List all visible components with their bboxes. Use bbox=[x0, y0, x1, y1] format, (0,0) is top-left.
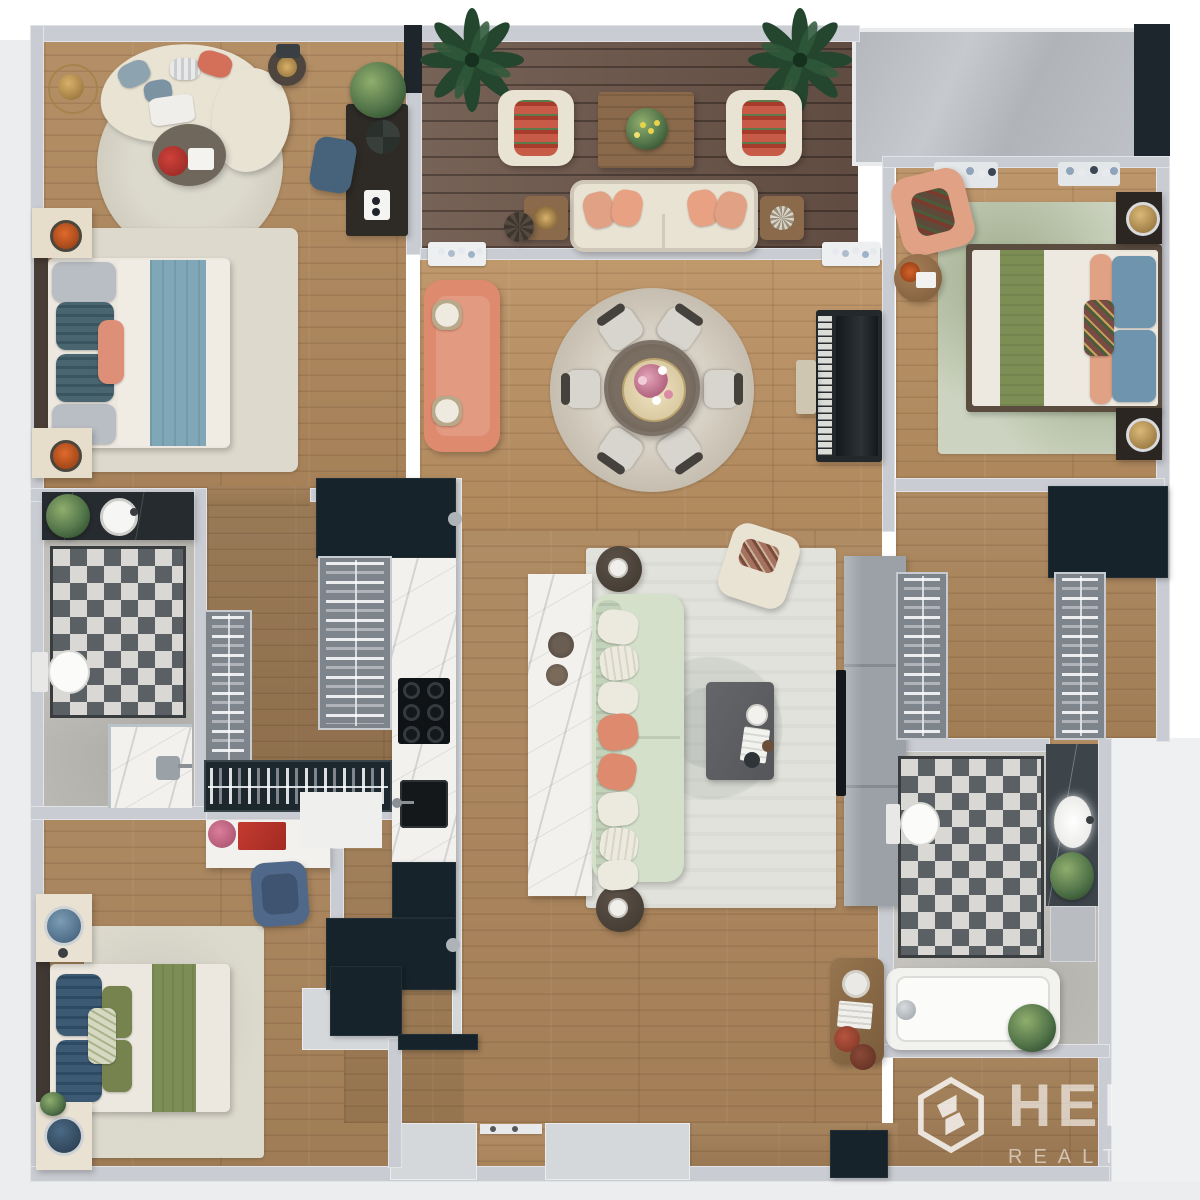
bathroom2-vanity-plant bbox=[1050, 852, 1094, 900]
kitchen-cabinet-top-knob bbox=[448, 512, 462, 526]
hall-dark-cabinet bbox=[830, 1130, 888, 1178]
glass-dark-frame bbox=[1134, 24, 1170, 166]
bathroom1-plant bbox=[46, 494, 90, 538]
wall-bottom-entry-right bbox=[545, 1123, 690, 1180]
dining-planter-right-flowers bbox=[832, 248, 839, 255]
dining-chair-left bbox=[566, 370, 600, 408]
piano-keys bbox=[818, 316, 832, 456]
master-bed-blue-throw bbox=[150, 260, 206, 446]
glass-skylight bbox=[852, 28, 1138, 166]
kitchen-end-strip bbox=[398, 1034, 478, 1050]
master-bed-pillow-grey-1 bbox=[52, 262, 116, 302]
closet-hangers bbox=[326, 562, 384, 724]
closet-hangers bbox=[1062, 578, 1098, 734]
dining-planter-left-flowers bbox=[438, 248, 445, 255]
dining-sofa-pillow-1 bbox=[432, 300, 462, 330]
wall-right-lower bbox=[1098, 738, 1112, 1182]
living-coffee-table-decor-1 bbox=[744, 752, 760, 768]
master-coffee-table-flowers bbox=[158, 146, 188, 176]
hall-bottom-right-floor bbox=[893, 1058, 1098, 1168]
bedroom2-side-table-card bbox=[916, 272, 936, 288]
master-sofa-pillow-stripe bbox=[170, 58, 200, 80]
bedroom3-desk-pink-flowers bbox=[208, 820, 236, 848]
kitchen-cabinet-mid bbox=[392, 862, 456, 918]
bedroom3-nightstand-plant bbox=[40, 1092, 66, 1116]
master-desk-parasol-decor bbox=[366, 120, 400, 154]
bathtub-plant bbox=[1008, 1004, 1056, 1052]
closet2-cabinet bbox=[1048, 486, 1168, 578]
balcony-armchair-right-cushion bbox=[742, 100, 786, 156]
balcony-table-plant bbox=[626, 108, 668, 150]
master-desk-tray-dot1 bbox=[372, 197, 380, 205]
hall-console-book bbox=[837, 1001, 873, 1030]
master-bed-pillow-salmon bbox=[98, 320, 124, 384]
bathroom2-toilet-bowl bbox=[900, 802, 940, 846]
balcony-stool bbox=[504, 212, 534, 242]
wall-bedroom2-top bbox=[882, 156, 1170, 168]
balcony-armchair-left-cushion bbox=[514, 100, 558, 156]
bedroom3-bed-green-runner bbox=[152, 964, 196, 1112]
bedroom3-lamp-top bbox=[44, 906, 84, 946]
master-candle-top bbox=[50, 220, 82, 252]
bedroom2-lamp-top bbox=[1126, 202, 1160, 236]
hall-console-tray bbox=[842, 970, 870, 998]
outside-left bbox=[0, 40, 30, 1200]
master-side-table-tray bbox=[277, 57, 297, 77]
bedroom2-pillow-blue-1 bbox=[1112, 256, 1156, 328]
hall-console-flowers-2 bbox=[850, 1044, 876, 1070]
living-sofa-pillow-white-3 bbox=[596, 680, 639, 716]
cooktop-burner-1 bbox=[403, 682, 420, 699]
master-wall-decor bbox=[276, 44, 300, 58]
master-bed-headboard bbox=[34, 254, 48, 450]
tv-screen bbox=[836, 670, 846, 796]
bedroom2-lamp-bottom bbox=[1126, 418, 1160, 452]
master-candle-bottom bbox=[50, 440, 82, 472]
bedroom3-pillow-floral bbox=[88, 1008, 116, 1064]
wall-bottom-entry-left bbox=[390, 1123, 477, 1180]
living-coffee-table-cup bbox=[746, 704, 768, 726]
bedroom3-desk-red-art bbox=[238, 822, 286, 850]
bedroom3-office-chair-seat bbox=[261, 873, 300, 915]
cooktop-burner-5 bbox=[403, 726, 420, 743]
bathroom2-cabinet bbox=[1050, 906, 1096, 962]
master-desk-tray-dot2 bbox=[372, 208, 380, 216]
bathroom1-toilet-bowl bbox=[48, 650, 90, 694]
bedroom3-lamp-bottom bbox=[44, 1116, 84, 1156]
bedroom3-nightstand-top-dot bbox=[58, 948, 68, 958]
kitchen-cabinet-top bbox=[316, 478, 456, 558]
dining-table-flowers bbox=[634, 364, 668, 398]
living-console-plate-2 bbox=[546, 664, 568, 686]
closet1-rack-left bbox=[204, 610, 252, 764]
outside-right bbox=[1110, 738, 1200, 1182]
cooktop-burner-2 bbox=[427, 682, 444, 699]
cooktop-burner-3 bbox=[403, 704, 420, 721]
bathroom2-checker-floor bbox=[898, 756, 1044, 958]
bedroom2-pillow-floral bbox=[1084, 300, 1114, 356]
piano-bench bbox=[796, 360, 816, 414]
bathtub-faucet bbox=[896, 1000, 916, 1020]
living-side-table-bottom-cup bbox=[608, 898, 628, 918]
bathroom1-toilet-tank bbox=[32, 652, 48, 692]
piano-lid bbox=[836, 316, 878, 456]
balcony-side-table-right-tray bbox=[770, 206, 794, 230]
kitchen-sink bbox=[400, 780, 448, 828]
living-sofa-pillow-white-6 bbox=[597, 859, 639, 892]
dining-sofa-pillow-2 bbox=[432, 396, 462, 426]
living-console-plate-1 bbox=[548, 632, 574, 658]
bedroom2-planter-2-flowers bbox=[1066, 167, 1074, 175]
cooktop-burner-4 bbox=[427, 704, 444, 721]
wall-bathroom1-bottom bbox=[30, 806, 207, 820]
bedroom2-bed-green-runner bbox=[1000, 250, 1044, 406]
outside-bottom bbox=[0, 1180, 1200, 1200]
master-coffee-table-tray bbox=[188, 148, 214, 170]
entry-door-handle-2 bbox=[512, 1126, 518, 1132]
wall-bedroom3-right-lower bbox=[388, 1038, 402, 1168]
bedroom3-bed-headboard bbox=[36, 960, 50, 1114]
dining-planter-right bbox=[822, 242, 880, 266]
balcony-table-flower-dot bbox=[640, 122, 646, 128]
entry-door-handle-1 bbox=[490, 1126, 496, 1132]
cooktop-burner-6 bbox=[427, 726, 444, 743]
balcony-side-table-left-tray bbox=[534, 206, 558, 230]
master-desk-plant bbox=[350, 62, 406, 118]
kitchen-cabinet-bottom-l bbox=[330, 966, 402, 1036]
bathroom2-faucet bbox=[1086, 816, 1094, 824]
bathroom2-toilet-tank bbox=[886, 804, 900, 844]
bathroom1-faucet bbox=[130, 508, 138, 516]
dining-planter-left bbox=[428, 242, 486, 266]
closet2-rack-right bbox=[1054, 572, 1106, 740]
closet-hangers bbox=[904, 578, 940, 734]
master-closet-passage-floor bbox=[206, 486, 310, 506]
bathroom1-shower-arm bbox=[178, 764, 192, 768]
dining-table-flower-dots bbox=[652, 396, 661, 405]
wall-bedroom2-left bbox=[882, 160, 895, 532]
bathroom1-sink bbox=[100, 498, 138, 536]
closet-hangers bbox=[212, 616, 244, 758]
wall-bathroom2-top bbox=[894, 738, 1050, 752]
living-console-table bbox=[528, 574, 592, 896]
kitchen-faucet-arm bbox=[400, 801, 414, 804]
living-side-table-top-cup bbox=[608, 558, 628, 578]
closet1-rack-right bbox=[318, 556, 392, 730]
bedroom2-pillow-blue-2 bbox=[1112, 330, 1156, 402]
living-coffee-table-decor-2 bbox=[762, 740, 774, 752]
balcony-sofa-seam bbox=[662, 214, 665, 248]
closet2-rack-left bbox=[896, 572, 948, 740]
bedroom3-desk-wing bbox=[300, 792, 382, 848]
floor-plan-render: HER REALT bbox=[0, 0, 1200, 1200]
bathroom1-shower-head bbox=[156, 756, 180, 780]
master-floor-lamp-shade bbox=[58, 74, 84, 100]
dining-chair-right bbox=[704, 370, 738, 408]
kitchen-cabinet-bottom-knob bbox=[446, 938, 460, 952]
